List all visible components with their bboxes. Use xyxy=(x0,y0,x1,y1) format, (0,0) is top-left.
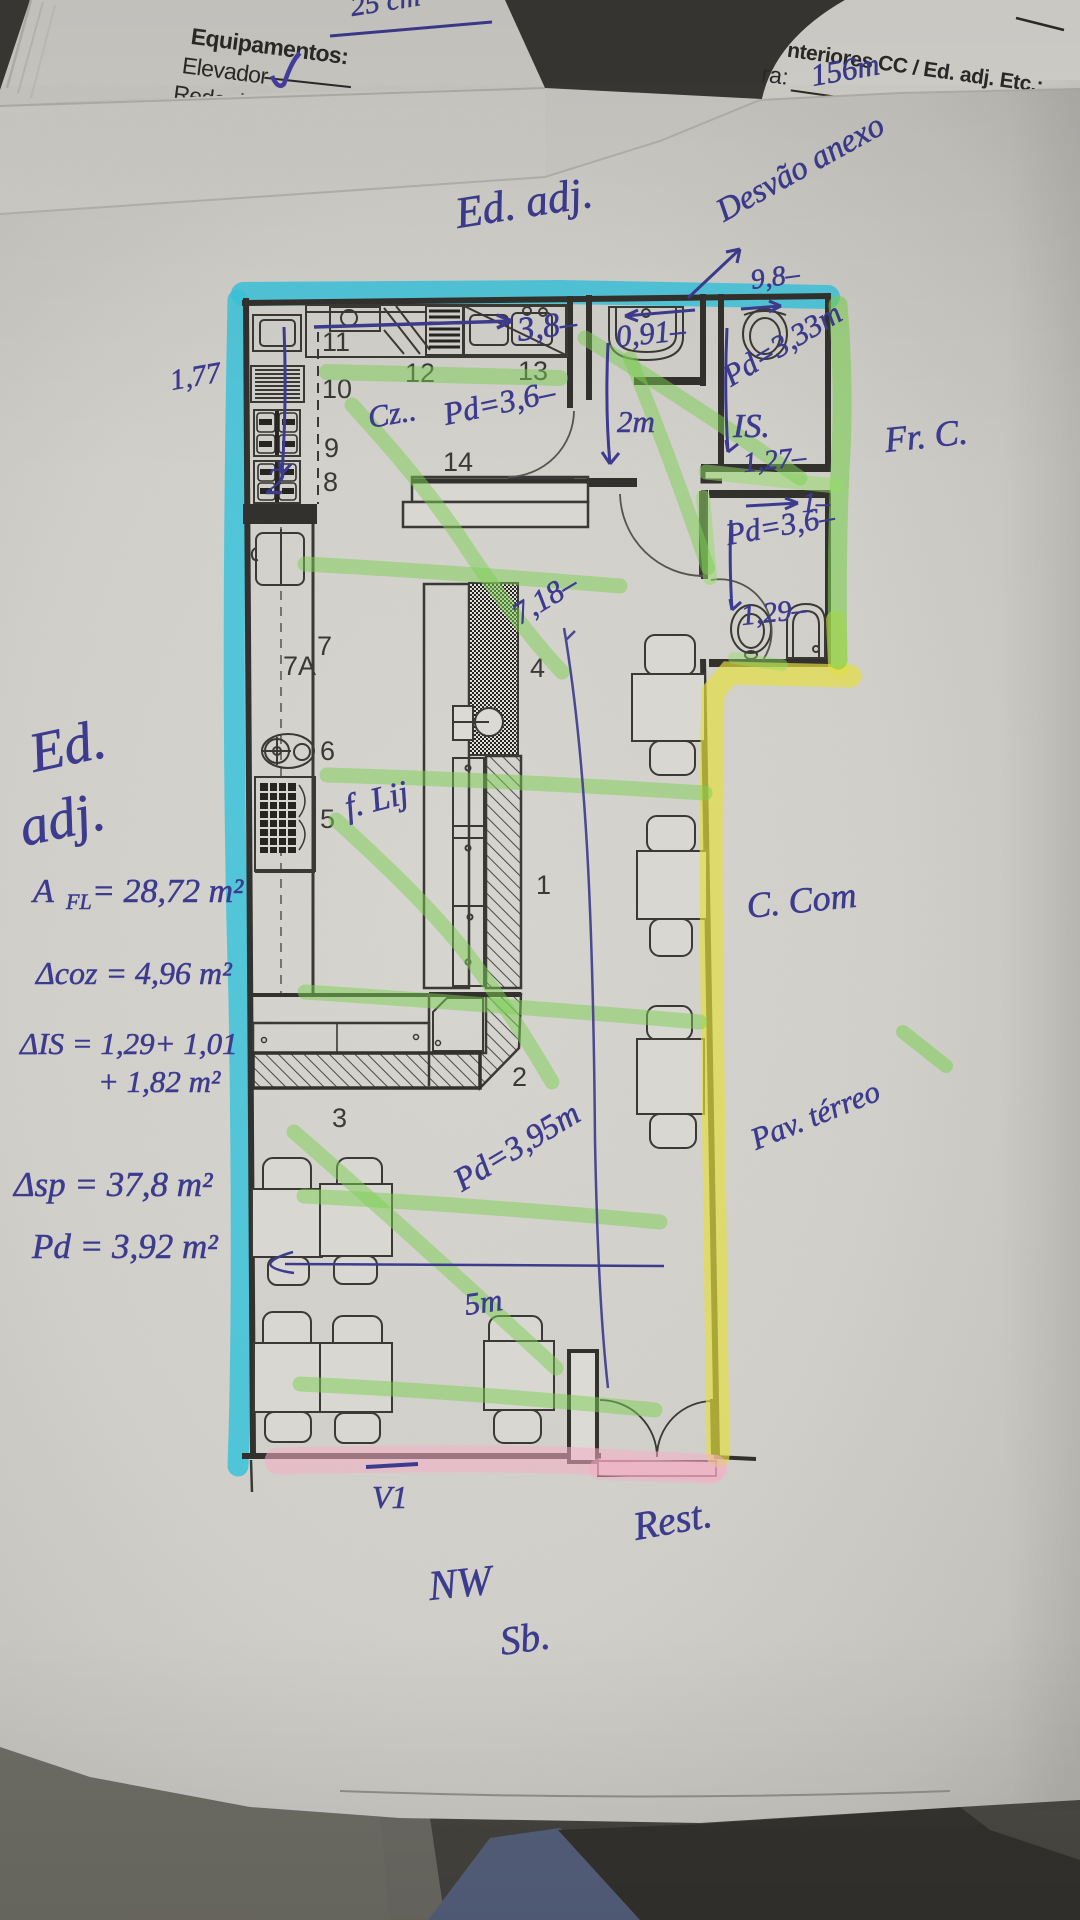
svg-text:= 28,72 m²: = 28,72 m² xyxy=(92,873,244,910)
svg-text:11: 11 xyxy=(322,327,350,357)
svg-text:1: 1 xyxy=(536,870,551,900)
svg-text:Pd = 3,92 m²: Pd = 3,92 m² xyxy=(31,1227,218,1266)
svg-text:Δsp = 37,8 m²: Δsp = 37,8 m² xyxy=(12,1165,213,1204)
svg-text:2m: 2m xyxy=(617,404,655,439)
svg-text:Δcoz = 4,96 m²: Δcoz = 4,96 m² xyxy=(34,955,233,991)
svg-text:IS.: IS. xyxy=(732,408,770,445)
svg-text:3: 3 xyxy=(332,1103,347,1133)
svg-text:FL: FL xyxy=(65,889,92,914)
svg-text:7: 7 xyxy=(317,631,332,661)
svg-text:8: 8 xyxy=(323,467,338,497)
svg-text:2: 2 xyxy=(512,1062,527,1092)
svg-text:7A: 7A xyxy=(283,651,316,681)
svg-text:6: 6 xyxy=(320,736,335,766)
svg-text:9: 9 xyxy=(324,433,339,463)
svg-text:V1: V1 xyxy=(372,1479,408,1515)
svg-text:A: A xyxy=(31,873,54,910)
svg-text:NW: NW xyxy=(425,1557,497,1610)
svg-text:0,91–: 0,91– xyxy=(614,312,688,354)
svg-text:1,29–: 1,29– xyxy=(739,593,808,632)
svg-text:2: 2 xyxy=(266,461,285,503)
svg-text:ΔIS = 1,29+ 1,01: ΔIS = 1,29+ 1,01 xyxy=(18,1026,238,1061)
svg-text:Sb.: Sb. xyxy=(497,1612,553,1664)
svg-text:+ 1,82 m²: + 1,82 m² xyxy=(98,1064,221,1099)
svg-text:14: 14 xyxy=(443,447,473,477)
svg-text:5m: 5m xyxy=(462,1282,504,1322)
